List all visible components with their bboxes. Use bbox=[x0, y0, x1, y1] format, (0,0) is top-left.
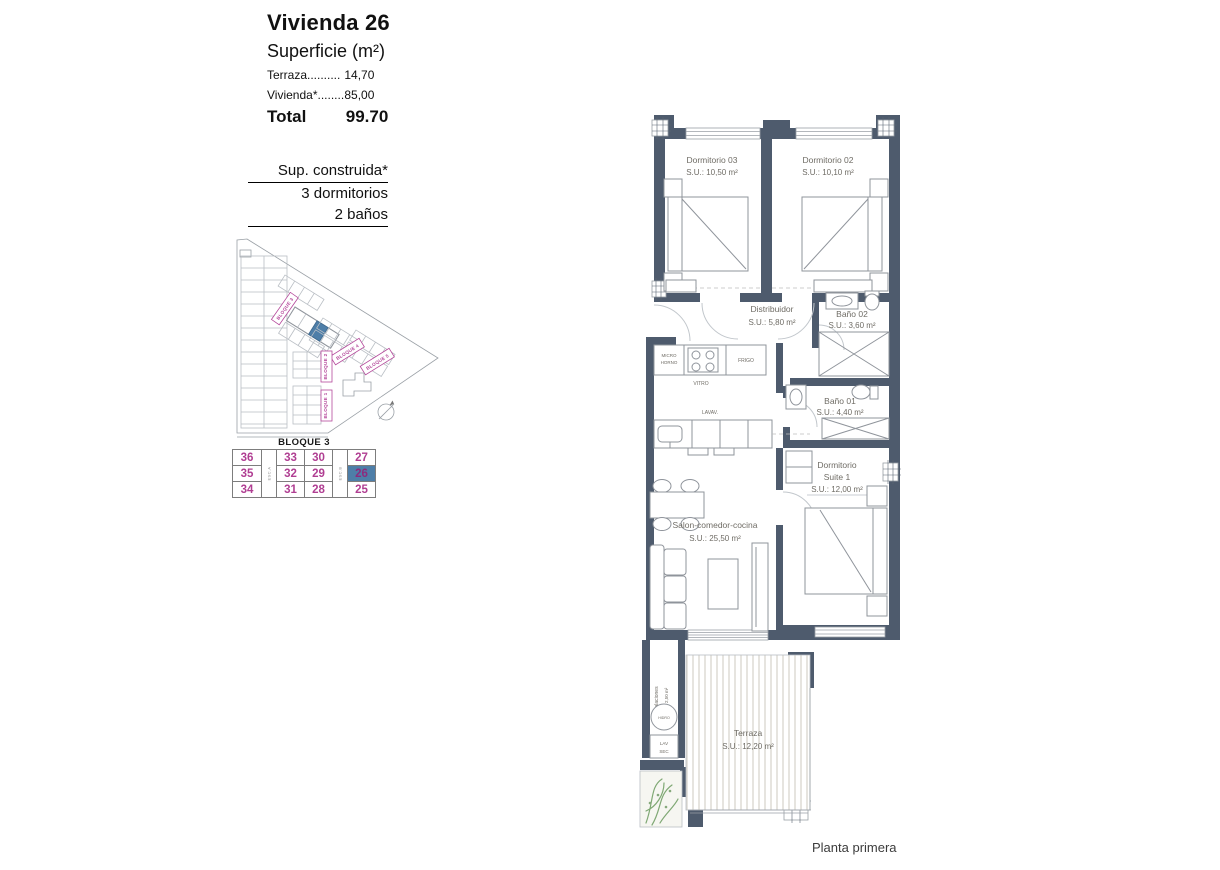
room-area: S.U.: 10,50 m² bbox=[686, 168, 738, 177]
surface-header: Vivienda 26 Superficie (m²) Terraza.....… bbox=[267, 10, 467, 127]
unit-cell: 35 bbox=[233, 466, 262, 482]
column-symbol bbox=[878, 117, 897, 139]
appliance-label: VITRO bbox=[693, 381, 708, 387]
total-row: Total 99.70 bbox=[267, 107, 467, 127]
room-label: Baño 01 bbox=[824, 396, 856, 406]
terraza-row: Terraza.......... 14,70 bbox=[267, 68, 467, 82]
appliance-label: SEC bbox=[659, 749, 669, 754]
room-area: S.U.: 25,50 m² bbox=[689, 534, 741, 543]
total-label: Total bbox=[267, 107, 341, 127]
unit-cell: 33 bbox=[277, 450, 305, 466]
sink bbox=[658, 426, 682, 442]
site-plan: BLOQUE 3 BLOQUE 4 BLOQUE 5 bbox=[225, 228, 460, 440]
unit-cell-current: 26 bbox=[348, 466, 376, 482]
compass-icon bbox=[378, 401, 394, 421]
room-dormitorio-02: Dormitorio 02 S.U.: 10,10 m² bbox=[772, 155, 888, 292]
room-bano-02: Baño 02 S.U.: 3,60 m² bbox=[819, 291, 889, 376]
sink bbox=[826, 293, 858, 309]
vivienda-label: Vivienda*........ bbox=[267, 88, 341, 102]
plan-caption: Planta primera bbox=[812, 840, 897, 855]
room-bano-01: Baño 01 S.U.: 4,40 m² bbox=[786, 385, 889, 439]
floor-plan: Dormitorio 03 S.U.: 10,50 m² Dormitorio … bbox=[600, 95, 930, 855]
sofa bbox=[650, 545, 686, 629]
unit-cell: 25 bbox=[348, 482, 376, 498]
stair-b-cell: ESC.B bbox=[333, 450, 348, 498]
room-terraza: Terraza S.U.: 12,20 m² bbox=[686, 655, 810, 813]
room-label: Baño 02 bbox=[836, 309, 868, 319]
bloque1-label: BLOQUE 1 bbox=[323, 392, 328, 418]
column-symbol bbox=[652, 117, 671, 139]
room-label: Dormitorio bbox=[817, 460, 856, 470]
appliance-label: HORNO bbox=[661, 360, 678, 365]
construida-line: Sup. construida* bbox=[248, 160, 388, 183]
room-salon: Salon-comedor-cocina S.U.: 25,50 m² bbox=[650, 480, 768, 632]
nightstand bbox=[867, 596, 887, 616]
window-suite bbox=[815, 627, 885, 637]
room-area: S.U.: 5,80 m² bbox=[748, 318, 795, 327]
shower bbox=[822, 418, 889, 439]
window-dorm02 bbox=[796, 128, 872, 139]
room-label: Salon-comedor-cocina bbox=[672, 520, 757, 530]
window-dorm03 bbox=[686, 128, 760, 139]
dormitorios-line: 3 dormitorios bbox=[248, 183, 388, 204]
nightstand bbox=[870, 273, 888, 291]
room-dormitorio-03: Dormitorio 03 S.U.: 10,50 m² bbox=[664, 155, 760, 292]
vivienda-row: Vivienda*........ 85,00 bbox=[267, 88, 467, 102]
rowhouses-west bbox=[241, 256, 287, 428]
kitchen: MICRO HORNO FRIGO VITRO bbox=[654, 345, 766, 387]
appliance-label: HIDRO bbox=[658, 716, 670, 720]
appliance-label: MICRO bbox=[662, 353, 677, 358]
shower bbox=[819, 332, 889, 376]
room-label: Dormitorio 03 bbox=[686, 155, 737, 165]
room-suite-1: Dormitorio Suite 1 S.U.: 12,00 m² bbox=[786, 451, 887, 616]
unit-cell: 34 bbox=[233, 482, 262, 498]
wardrobe bbox=[814, 280, 872, 292]
brochure-page: Vivienda 26 Superficie (m²) Terraza.....… bbox=[0, 0, 1220, 870]
nightstand bbox=[870, 179, 888, 197]
terraza-value: 14,70 bbox=[344, 68, 374, 82]
bloque1-label-box: BLOQUE 1 bbox=[321, 390, 332, 421]
bed bbox=[805, 508, 887, 594]
bloque1-cluster bbox=[293, 386, 321, 424]
unit-cell: 32 bbox=[277, 466, 305, 482]
surface-subtitle: Superficie (m²) bbox=[267, 41, 467, 62]
unit-cell: 36 bbox=[233, 450, 262, 466]
communal-building bbox=[343, 373, 371, 396]
nightstand bbox=[867, 486, 887, 506]
planter bbox=[640, 771, 682, 827]
appliance-label: FRIGO bbox=[738, 358, 754, 364]
room-area: S.U.: 3,60 m² bbox=[828, 321, 875, 330]
room-instalaciones: Instalaciones S.U.: 2,50 m² HIDRO LAV SE… bbox=[650, 686, 678, 758]
room-area: S.U.: 4,40 m² bbox=[816, 408, 863, 417]
wardrobe bbox=[666, 280, 696, 292]
appliance-label: LAVAV. bbox=[702, 410, 718, 416]
room-area: S.U.: 12,00 m² bbox=[811, 485, 863, 494]
washer-dryer: LAV SEC bbox=[650, 735, 678, 758]
appliance-label: LAV bbox=[660, 741, 668, 746]
sink bbox=[786, 385, 806, 409]
column-symbol bbox=[883, 460, 901, 484]
unit-cell: 30 bbox=[305, 450, 333, 466]
bloque2-label: BLOQUE 2 bbox=[323, 353, 328, 379]
vivienda-value: 85,00 bbox=[344, 88, 374, 102]
coffee-table bbox=[708, 559, 738, 609]
room-label: Distribuidor bbox=[751, 304, 794, 314]
toilet bbox=[865, 291, 879, 310]
page-title: Vivienda 26 bbox=[267, 10, 467, 36]
room-distribuidor: Distribuidor S.U.: 5,80 m² bbox=[748, 304, 795, 327]
unit-table-title: BLOQUE 3 bbox=[232, 437, 376, 449]
room-label: Dormitorio 02 bbox=[802, 155, 853, 165]
unit-cell: 29 bbox=[305, 466, 333, 482]
unit-cell: 28 bbox=[305, 482, 333, 498]
total-value: 99.70 bbox=[346, 107, 389, 126]
room-label: Terraza bbox=[734, 728, 763, 738]
bloque2-cluster bbox=[293, 352, 321, 378]
nightstand bbox=[664, 179, 682, 197]
construida-block: Sup. construida* 3 dormitorios 2 baños bbox=[248, 160, 388, 227]
room-area: S.U.: 10,10 m² bbox=[802, 168, 854, 177]
unit-cell: 27 bbox=[348, 450, 376, 466]
room-area: S.U.: 12,20 m² bbox=[722, 742, 774, 751]
tv-sideboard bbox=[752, 543, 768, 631]
bed bbox=[668, 197, 748, 271]
bloque2-label-box: BLOQUE 2 bbox=[321, 351, 332, 382]
toilet bbox=[852, 385, 878, 399]
bed bbox=[802, 197, 882, 271]
water-heater: HIDRO bbox=[651, 704, 677, 730]
terraza-label: Terraza.......... bbox=[267, 68, 341, 82]
room-label: Suite 1 bbox=[824, 472, 851, 482]
banos-line: 2 baños bbox=[248, 204, 388, 227]
unit-cell: 31 bbox=[277, 482, 305, 498]
stair-a-cell: ESC.A bbox=[262, 450, 277, 498]
unit-table: BLOQUE 3 36 ESC.A 33 30 ESC.B 27 35 32 2… bbox=[232, 437, 376, 498]
